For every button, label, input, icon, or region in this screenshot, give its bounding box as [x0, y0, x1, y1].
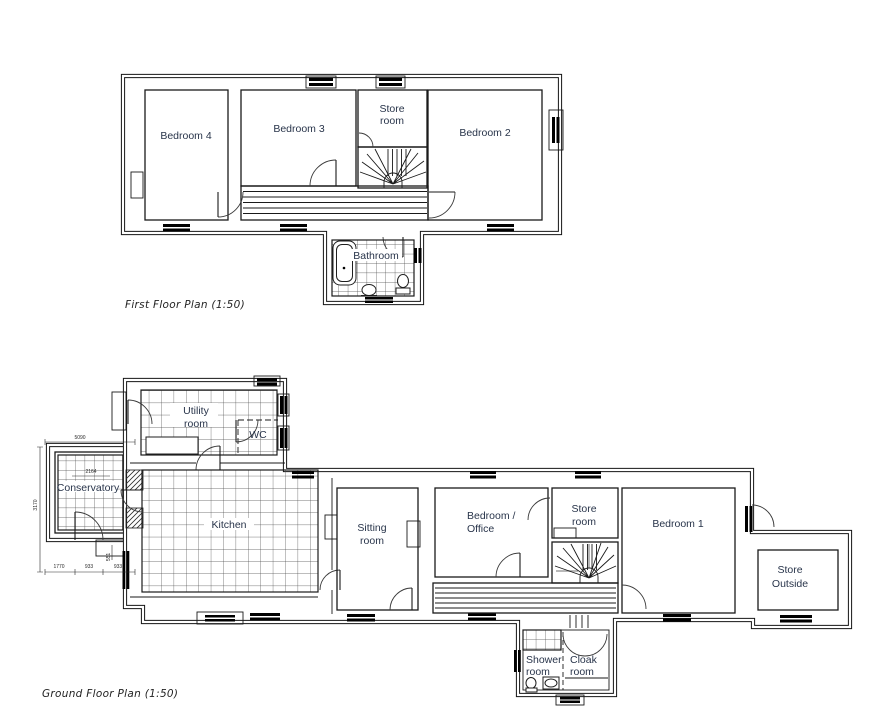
- cloak-room-label-line1: Cloak: [570, 654, 598, 666]
- shower-room-label-line2: room: [526, 666, 550, 678]
- utility-room-label-line2: room: [184, 418, 208, 430]
- store-room-label-line2: room: [380, 115, 404, 127]
- dim-bottom-2: 933: [85, 564, 94, 570]
- store-outside-label-line2: Outside: [772, 578, 808, 590]
- ground-floor-plan: 5090 2164 1770 933 933 3170 551 Utility …: [33, 376, 850, 705]
- conservatory-label: Conservatory: [57, 482, 120, 494]
- store-outside-label-line1: Store: [777, 564, 802, 576]
- hatched-wall-upper: [126, 470, 143, 490]
- first-floor-plan: Bedroom 4 Bedroom 3 Store room Bedroom 2…: [123, 76, 563, 311]
- ground-floor-plan-title: Ground Floor Plan (1:50): [42, 688, 178, 700]
- bedroom4-label: Bedroom 4: [160, 130, 212, 142]
- bedroom3-label: Bedroom 3: [273, 123, 325, 135]
- dim-bottom-1: 1770: [53, 564, 64, 570]
- utility-bench: [146, 437, 198, 454]
- hatched-wall-lower: [126, 508, 143, 528]
- dim-step-depth: 551: [106, 553, 112, 562]
- dim-inner-width: 2164: [85, 469, 96, 475]
- store-room-label-line1: Store: [379, 103, 404, 115]
- floor-plan-page: Bedroom 4 Bedroom 3 Store room Bedroom 2…: [0, 0, 895, 719]
- dim-conservatory-width: 5090: [74, 435, 85, 441]
- ground-store-room-label-line1: Store: [571, 503, 596, 515]
- toilet: [398, 275, 409, 288]
- bathroom-label: Bathroom: [353, 250, 399, 262]
- rear-door-arc: [752, 505, 774, 527]
- bedroom2-label: Bedroom 2: [459, 127, 511, 139]
- bedroom-office-label-line2: Office: [467, 523, 494, 535]
- ground-store-room-label-line2: room: [572, 516, 596, 528]
- kitchen-label: Kitchen: [211, 519, 246, 531]
- wc-label: WC: [249, 429, 267, 441]
- dim-bottom-3: 933: [114, 564, 123, 570]
- utility-room-label-line1: Utility: [183, 405, 209, 417]
- toilet: [526, 678, 536, 689]
- dim-conservatory-height: 3170: [33, 499, 39, 510]
- conservatory: [48, 445, 133, 556]
- sitting-room-label-line2: room: [360, 535, 384, 547]
- bedroom-office-label-line1: Bedroom /: [467, 510, 516, 522]
- cloak-room-label-line2: room: [570, 666, 594, 678]
- shower-room-label-line1: Shower: [526, 654, 562, 666]
- bedroom1-label: Bedroom 1: [652, 518, 704, 530]
- first-floor-plan-title: First Floor Plan (1:50): [125, 299, 245, 311]
- sink: [362, 285, 376, 296]
- floor-plan-drawing: Bedroom 4 Bedroom 3 Store room Bedroom 2…: [0, 0, 895, 719]
- sitting-room-label-line1: Sitting: [357, 522, 386, 534]
